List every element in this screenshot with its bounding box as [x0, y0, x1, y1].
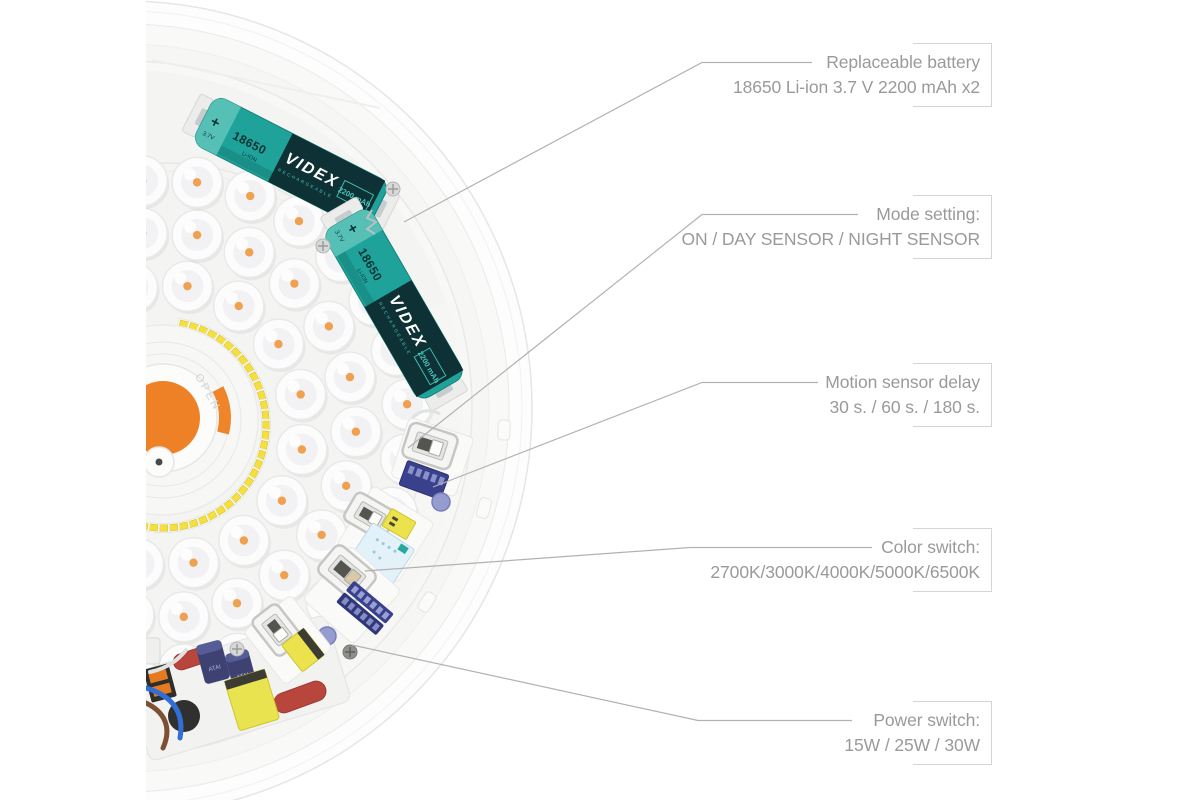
callout-detail: 30 s. / 60 s. / 180 s. [600, 395, 980, 420]
callout-title: Power switch: [600, 708, 980, 733]
callout-color: Color switch: 2700K/3000K/4000K/5000K/65… [600, 535, 980, 585]
led-dome [117, 208, 169, 261]
led-dome [114, 539, 166, 592]
blue-capacitor [432, 493, 450, 511]
callout-title: Motion sensor delay [600, 370, 980, 395]
callout-mode: Mode setting: ON / DAY SENSOR / NIGHT SE… [600, 202, 980, 252]
screw [316, 239, 330, 253]
lamp-illustration: OPEN [0, 0, 560, 800]
screw [386, 182, 400, 196]
callout-detail: 15W / 25W / 30W [600, 733, 980, 758]
callout-battery: Replaceable battery 18650 Li-ion 3.7 V 2… [600, 50, 980, 100]
callout-title: Mode setting: [600, 202, 980, 227]
orange-accent-arc [218, 389, 225, 433]
screw [230, 642, 244, 656]
callout-title: Replaceable battery [600, 50, 980, 75]
led-dome [107, 262, 159, 315]
led-dome [104, 590, 156, 643]
product-infographic: OPEN [0, 0, 1200, 800]
callout-detail: 18650 Li-ion 3.7 V 2200 mAh x2 [600, 75, 980, 100]
callout-detail: ON / DAY SENSOR / NIGHT SENSOR [600, 227, 980, 252]
lock-knob [126, 381, 200, 455]
led-dome [117, 156, 169, 209]
callout-detail: 2700K/3000K/4000K/5000K/6500K [600, 560, 980, 585]
screw [343, 645, 357, 659]
smd-led [136, 520, 151, 531]
callout-motion: Motion sensor delay 30 s. / 60 s. / 180 … [600, 370, 980, 420]
center-button-dot [156, 459, 163, 466]
white-connector [142, 638, 160, 664]
center-plate: OPEN [68, 325, 258, 515]
callout-power: Power switch: 15W / 25W / 30W [600, 708, 980, 758]
callout-title: Color switch: [600, 535, 980, 560]
